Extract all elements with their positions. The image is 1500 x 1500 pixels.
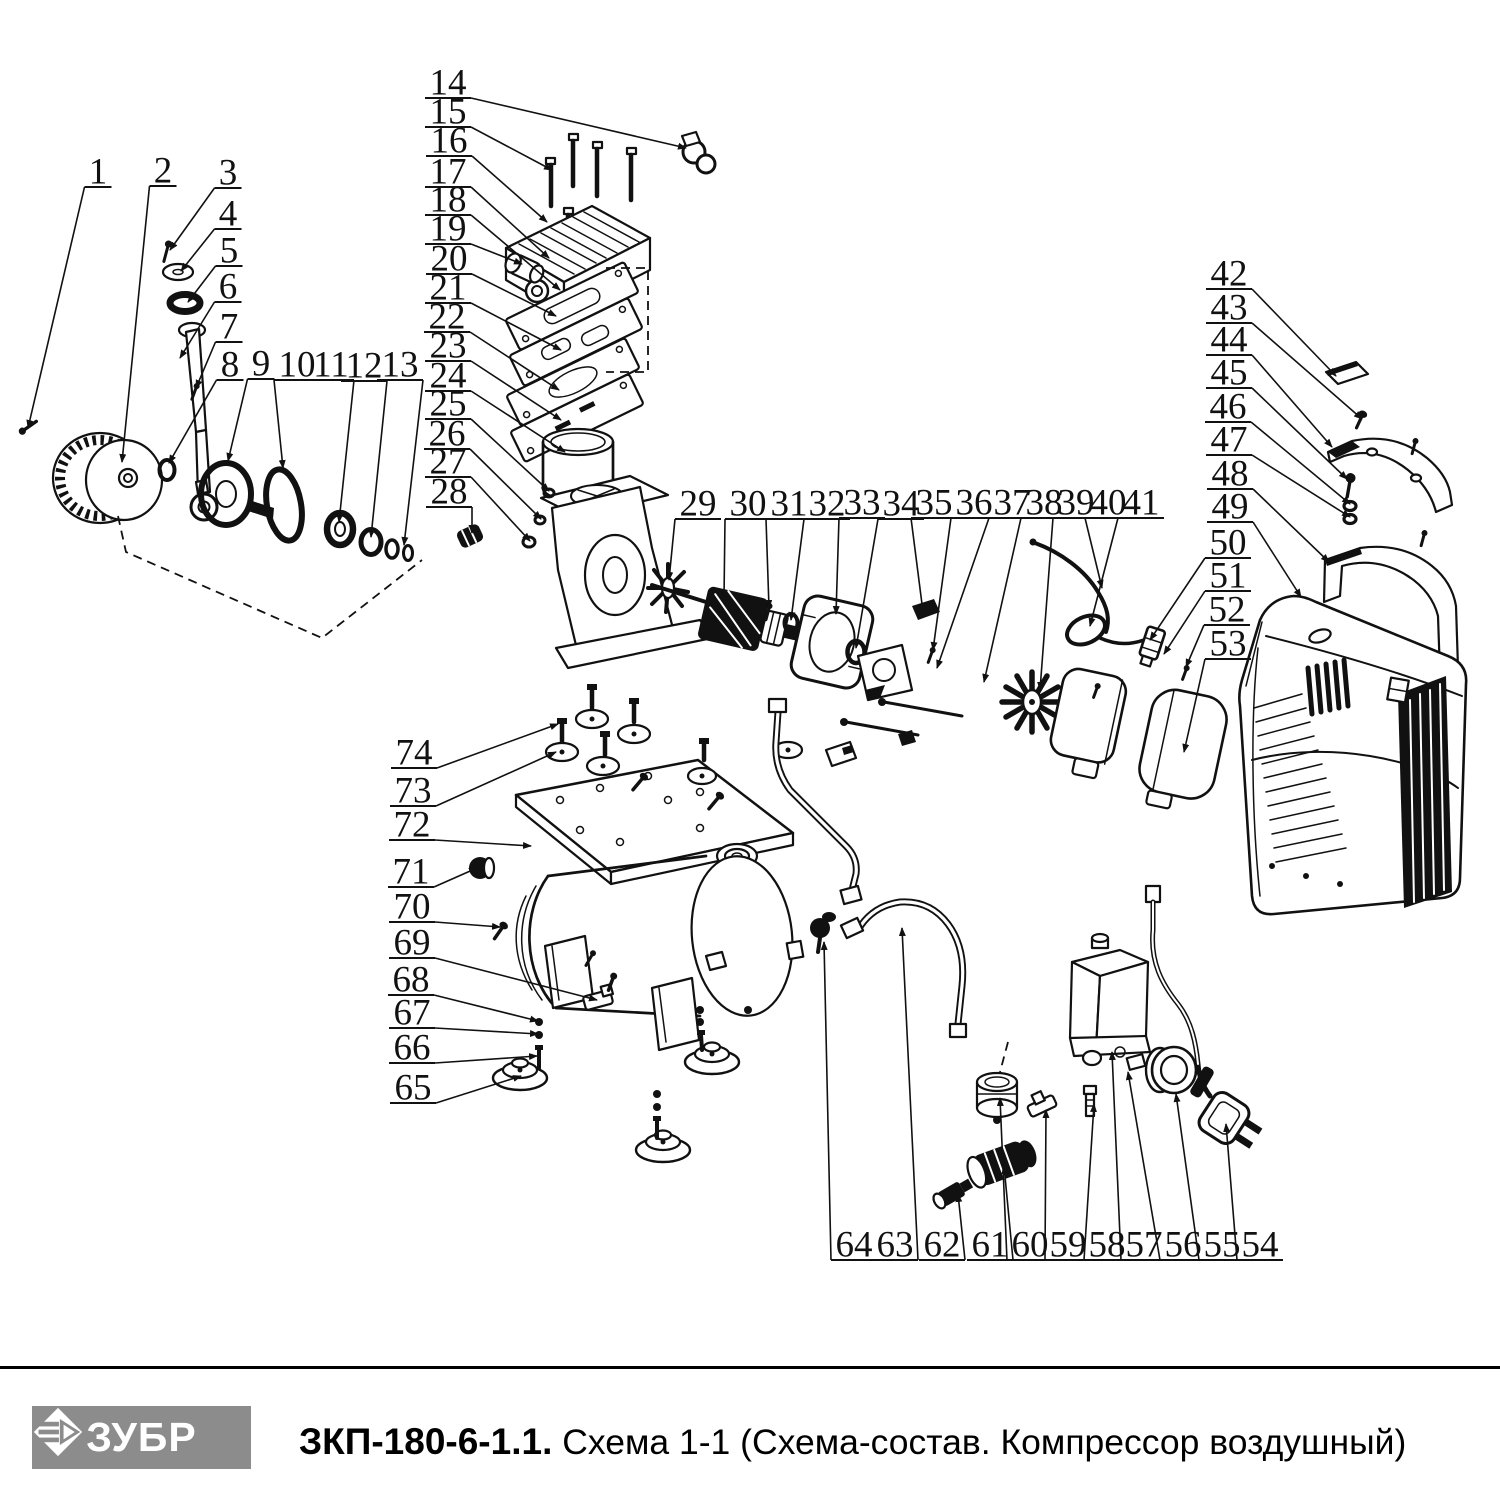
brush-holder xyxy=(912,599,940,620)
leader-line-2 xyxy=(122,186,150,462)
callout-28: 28 xyxy=(426,472,472,534)
callout-number-68: 68 xyxy=(393,960,430,1001)
foot-bolt-stack-1 xyxy=(535,1018,543,1068)
hose-nut-4 xyxy=(950,1024,966,1037)
callout-number-4: 4 xyxy=(219,194,238,235)
callout-number-60: 60 xyxy=(1012,1225,1049,1266)
wire-connector xyxy=(1137,626,1166,668)
leader-line-13 xyxy=(404,380,423,545)
leader-line-3 xyxy=(170,188,215,250)
leader-line-68 xyxy=(434,995,538,1021)
handle-washer-2 xyxy=(1344,515,1356,524)
callout-number-49: 49 xyxy=(1212,487,1249,528)
leader-line-16 xyxy=(472,156,547,222)
leader-line-10 xyxy=(274,380,283,468)
callout-number-65: 65 xyxy=(395,1068,432,1109)
motor-cover-left xyxy=(1045,666,1129,781)
pulley-fan-wheel xyxy=(53,433,162,523)
callout-number-73: 73 xyxy=(395,771,432,812)
crank-pin xyxy=(925,646,936,663)
stray-screw-2 xyxy=(1418,529,1428,546)
brand-logo: ЗУБР xyxy=(32,1406,251,1469)
callout-number-59: 59 xyxy=(1050,1225,1087,1266)
cover-screw-2 xyxy=(1180,664,1191,680)
leader-line-72 xyxy=(435,840,531,846)
power-plug xyxy=(1195,1089,1268,1157)
callout-number-69: 69 xyxy=(394,923,431,964)
callout-number-33: 33 xyxy=(844,483,881,524)
callout-number-36: 36 xyxy=(956,483,993,524)
callout-number-56: 56 xyxy=(1165,1225,1202,1266)
model-number: ЗКП-180-6-1.1. xyxy=(299,1421,552,1462)
leader-line-32 xyxy=(791,519,804,620)
angle-fitting xyxy=(931,1176,975,1210)
leader-line-12 xyxy=(371,381,387,537)
footer-title: ЗКП-180-6-1.1. Схема 1-1 (Схема-состав. … xyxy=(299,1421,1406,1463)
callout-number-11: 11 xyxy=(313,345,349,386)
hose-nut-1 xyxy=(769,699,786,712)
callout-number-6: 6 xyxy=(219,267,238,308)
page: { "page": { "background": "#ffffff", "li… xyxy=(0,0,1500,1500)
leader-line-35 xyxy=(911,518,923,612)
leader-line-63 xyxy=(902,928,918,1260)
callout-number-66: 66 xyxy=(394,1028,431,1069)
callout-70: 70 xyxy=(389,887,500,928)
leader-line-41 xyxy=(1090,518,1118,626)
leader-line-45 xyxy=(1252,388,1347,479)
tee-fitting xyxy=(1023,1087,1057,1117)
handle-washer-1 xyxy=(1344,502,1356,511)
check-valve xyxy=(810,912,836,952)
leader-line-11 xyxy=(339,380,354,522)
dark-slat-panel xyxy=(1398,676,1452,908)
leader-line-38 xyxy=(984,518,1021,682)
callout-number-13: 13 xyxy=(382,345,419,386)
leader-line-29 xyxy=(669,519,675,580)
tank-plug xyxy=(469,857,494,879)
rubber-coupler xyxy=(455,523,484,549)
crank-counterweight xyxy=(858,645,912,700)
leader-line-67 xyxy=(435,1028,538,1034)
callout-64: 64 xyxy=(824,942,877,1266)
callout-number-54: 54 xyxy=(1242,1225,1279,1266)
callout-number-74: 74 xyxy=(396,733,433,774)
leader-line-1 xyxy=(28,187,85,428)
callout-31: 31 xyxy=(766,484,812,609)
callout-63: 63 xyxy=(872,928,918,1266)
cable-clip xyxy=(826,742,856,766)
callout-number-35: 35 xyxy=(916,483,953,524)
elbow-fitting xyxy=(682,132,715,173)
callout-35: 35 xyxy=(911,483,957,613)
callout-33: 33 xyxy=(836,483,885,615)
callout-number-30: 30 xyxy=(730,484,767,525)
pressure-gauge xyxy=(1127,1047,1196,1093)
callout-71: 71 xyxy=(388,852,477,893)
callout-number-8: 8 xyxy=(221,345,240,386)
tank-nub xyxy=(744,1006,752,1014)
callout-74: 74 xyxy=(391,724,558,774)
callout-29: 29 xyxy=(669,484,721,581)
brand-logo-text: ЗУБР xyxy=(86,1417,196,1458)
leader-line-50 xyxy=(1150,558,1205,640)
pump-crankcase xyxy=(455,476,712,668)
leader-line-70 xyxy=(435,922,500,927)
callout-number-7: 7 xyxy=(220,307,239,348)
callout-13: 13 xyxy=(377,345,423,546)
pressure-switch xyxy=(1070,934,1150,1065)
hose-nut-3 xyxy=(841,918,863,938)
callout-number-57: 57 xyxy=(1126,1225,1163,1266)
callout-number-1: 1 xyxy=(89,152,108,193)
leader-line-51 xyxy=(1164,591,1205,654)
leader-line-49 xyxy=(1253,522,1301,597)
tank-fitting xyxy=(706,952,726,970)
callout-number-70: 70 xyxy=(394,887,431,928)
pneumatic-controls xyxy=(931,886,1268,1210)
callout-number-12: 12 xyxy=(346,346,383,387)
leader-line-37 xyxy=(937,518,989,668)
housing-shroud xyxy=(1239,596,1466,914)
callout-1: 1 xyxy=(28,152,112,429)
callout-number-41: 41 xyxy=(1123,483,1160,524)
brand-diamond-icon xyxy=(32,1406,84,1458)
callout-number-53: 53 xyxy=(1210,624,1247,665)
rubber-foot-2 xyxy=(636,1131,690,1163)
filter-cup xyxy=(977,1073,1017,1124)
leader-line-74 xyxy=(437,724,558,768)
callout-number-71: 71 xyxy=(393,852,430,893)
scheme-subtitle: Схема 1-1 (Схема-состав. Компрессор возд… xyxy=(552,1422,1406,1462)
callout-number-31: 31 xyxy=(771,484,808,525)
motor-group xyxy=(648,539,1231,817)
callout-number-9: 9 xyxy=(252,344,271,385)
callout-number-61: 61 xyxy=(972,1225,1009,1266)
callout-number-29: 29 xyxy=(680,484,717,525)
callout-number-2: 2 xyxy=(154,151,173,192)
leader-line-48 xyxy=(1253,489,1329,562)
callout-number-55: 55 xyxy=(1204,1225,1241,1266)
footer-separator xyxy=(0,1366,1500,1369)
leader-line-52 xyxy=(1186,625,1204,667)
rubber-foot-3 xyxy=(685,1043,739,1075)
callout-59: 59 xyxy=(1045,1110,1091,1266)
leader-line-4 xyxy=(181,229,215,271)
through-bolts xyxy=(840,698,962,735)
leader-line-31 xyxy=(766,519,769,608)
leader-line-15 xyxy=(471,127,552,170)
callout-30: 30 xyxy=(724,484,771,599)
callout-number-5: 5 xyxy=(220,231,239,272)
callout-58: 58 xyxy=(1084,1104,1130,1266)
hose-nut-2 xyxy=(840,886,861,904)
cylinder-head-assembly xyxy=(503,132,715,501)
wire-loop xyxy=(1062,610,1109,650)
diagram-svg: 1234567891011121314151617181920212223242… xyxy=(0,0,1500,1375)
leader-line-71 xyxy=(434,868,477,887)
foot-bracket-right xyxy=(652,978,699,1050)
callout-number-63: 63 xyxy=(877,1225,914,1266)
tank-plate-screw xyxy=(491,920,510,941)
leader-line-9 xyxy=(228,379,248,461)
leader-line-30 xyxy=(724,519,725,598)
tank-assembly xyxy=(469,684,803,1162)
leader-line-64 xyxy=(824,942,831,1260)
callout-number-58: 58 xyxy=(1089,1225,1126,1266)
leader-line-42 xyxy=(1252,289,1336,376)
motor-cover-right xyxy=(1132,685,1231,816)
callout-number-3: 3 xyxy=(219,153,238,194)
callout-number-62: 62 xyxy=(924,1225,961,1266)
leader-line-36 xyxy=(933,518,951,650)
callout-number-64: 64 xyxy=(836,1225,873,1266)
callout-number-28: 28 xyxy=(431,472,468,513)
